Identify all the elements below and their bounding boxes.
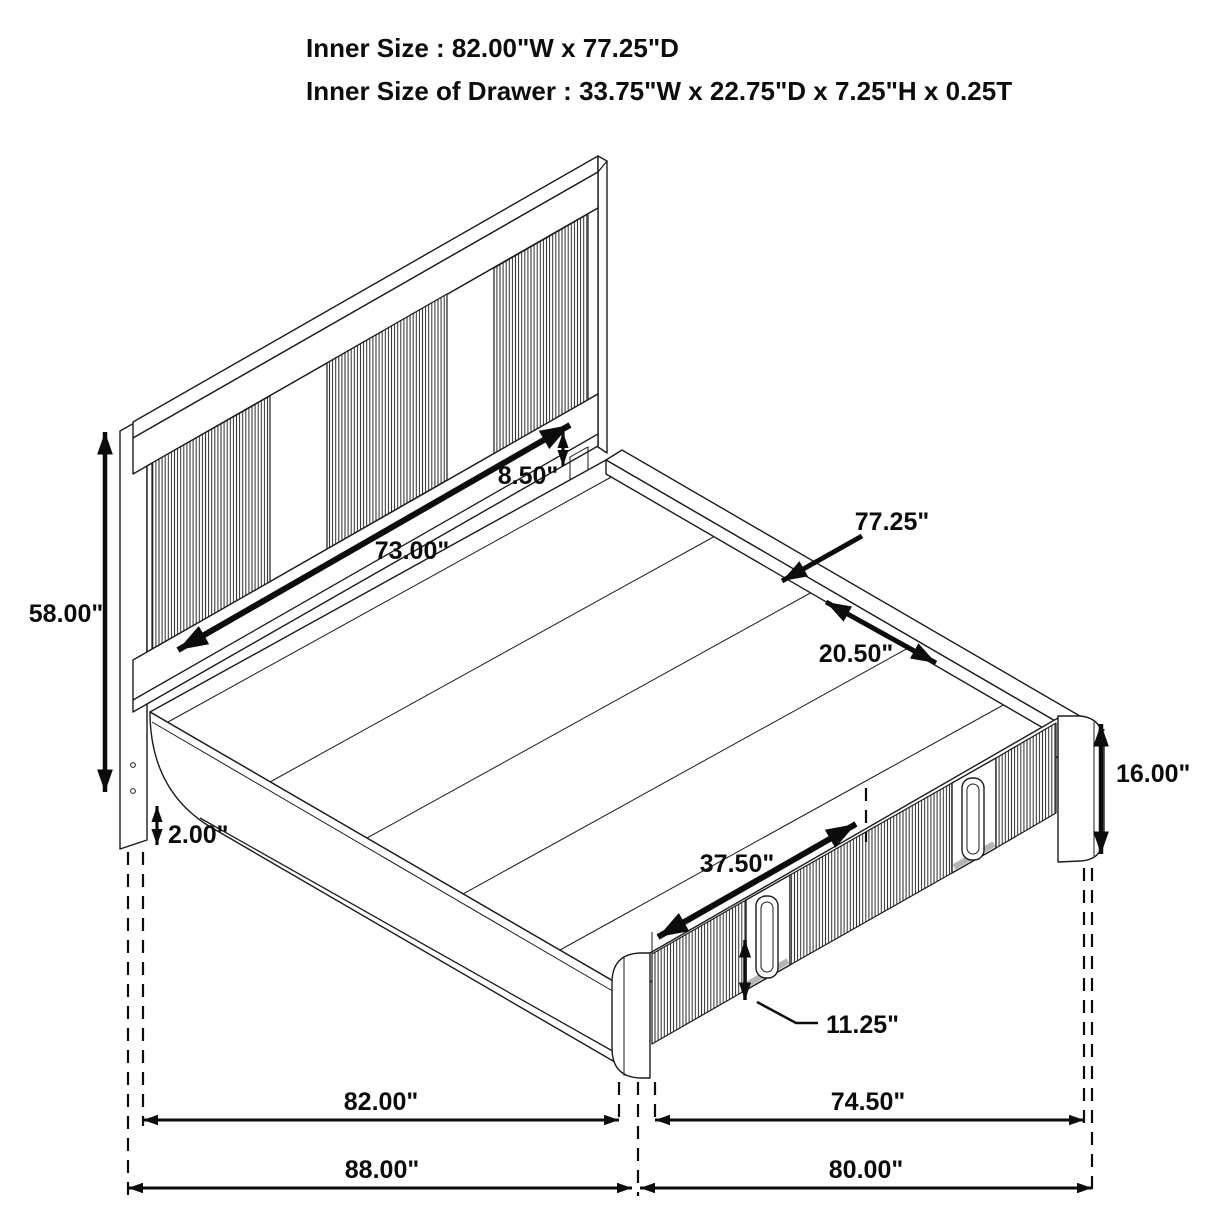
dimension-inner-depth: 77.25" bbox=[782, 508, 929, 581]
dim-label-footboard-height: 16.00" bbox=[1116, 760, 1190, 788]
dim-label-overall-depth: 80.00" bbox=[829, 1156, 903, 1184]
drawer-handle-right bbox=[962, 778, 984, 860]
dim-label-overall-width: 88.00" bbox=[345, 1156, 419, 1184]
drawer-handle-left bbox=[756, 896, 778, 978]
dim-label-rail-floor-gap: 2.00" bbox=[168, 821, 229, 849]
dim-label-headboard-rail-height: 8.50" bbox=[498, 462, 559, 490]
dimension-overall-width: 88.00" bbox=[128, 1156, 632, 1188]
bed-dimension-diagram-page: Inner Size : 82.00"W x 77.25"D Inner Siz… bbox=[0, 0, 1214, 1214]
headboard-right-edge bbox=[598, 156, 607, 453]
dim-label-drawer-front-width: 37.50" bbox=[700, 850, 774, 878]
dim-label-inner-depth: 77.25" bbox=[855, 508, 929, 536]
dimension-footboard-height: 16.00" bbox=[1101, 724, 1190, 854]
dimension-overall-depth: 80.00" bbox=[640, 1156, 1092, 1188]
footboard-left-post bbox=[612, 953, 650, 1078]
dimension-inner-width: 82.00" bbox=[143, 1088, 619, 1120]
dim-label-inner-width: 82.00" bbox=[344, 1088, 418, 1116]
dimension-footboard-width: 74.50" bbox=[655, 1088, 1084, 1120]
dim-label-footboard-width: 74.50" bbox=[831, 1088, 905, 1116]
bed-dimension-diagram: Inner Size : 82.00"W x 77.25"D Inner Siz… bbox=[0, 0, 1214, 1214]
title-line-1: Inner Size : 82.00"W x 77.25"D bbox=[306, 33, 679, 63]
dimension-headboard-height: 58.00" bbox=[29, 432, 105, 792]
footboard-right-post bbox=[1058, 716, 1104, 862]
title-line-2: Inner Size of Drawer : 33.75"W x 22.75"D… bbox=[306, 76, 1012, 106]
dim-label-headboard-width: 73.00" bbox=[375, 537, 449, 565]
headboard-left-post bbox=[120, 416, 147, 849]
dim-label-headboard-height: 58.00" bbox=[29, 600, 103, 628]
dim-label-deck-section-depth: 20.50" bbox=[819, 640, 893, 668]
dim-label-drawer-handle-height: 11.25" bbox=[826, 1011, 899, 1039]
title-block: Inner Size : 82.00"W x 77.25"D Inner Siz… bbox=[306, 33, 1012, 106]
